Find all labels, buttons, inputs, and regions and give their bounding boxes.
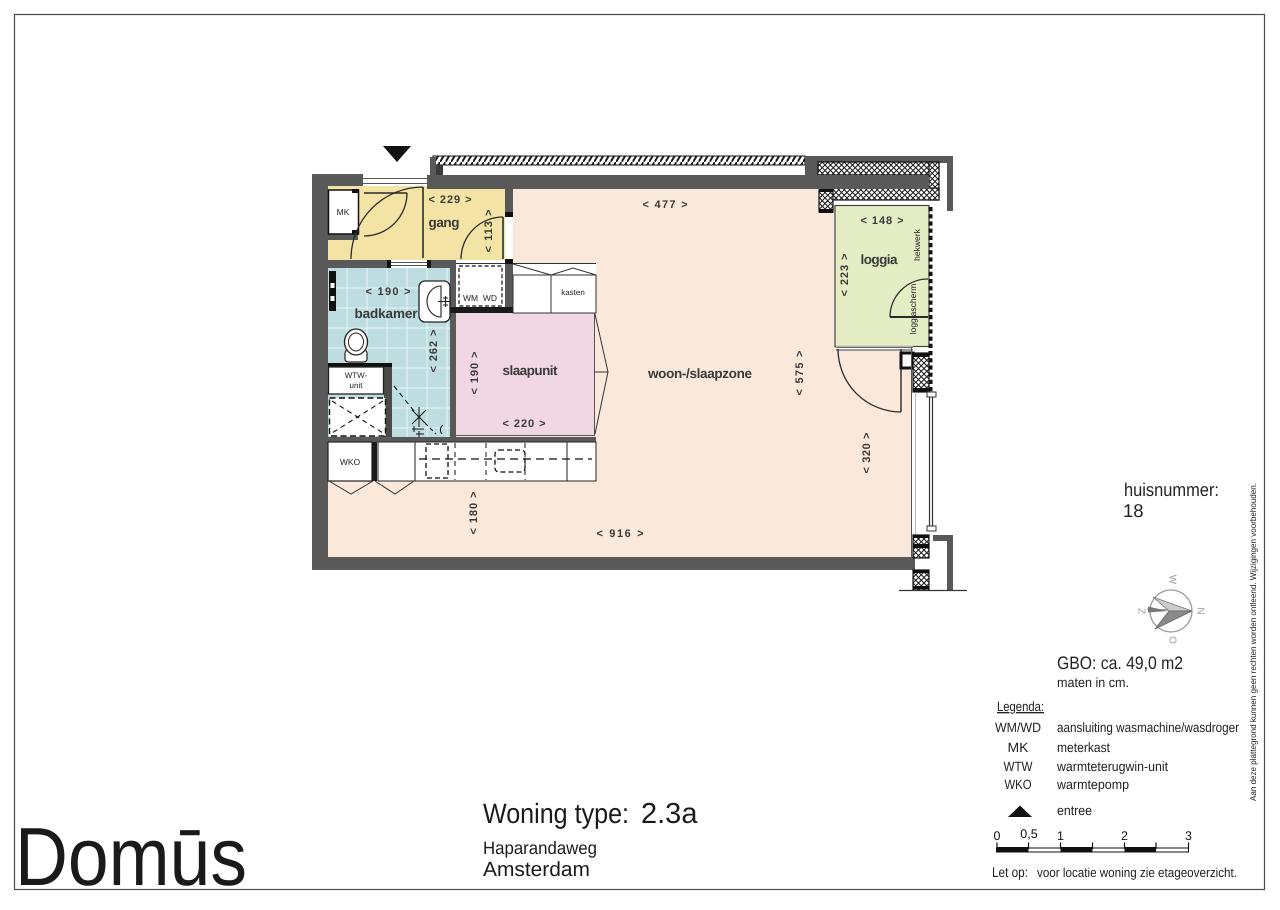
svg-text:slaapunit: slaapunit [503,363,559,378]
svg-text:W: W [1167,575,1178,585]
svg-text:voor locatie woning zie etageo: voor locatie woning zie etageoverzicht. [1037,865,1237,880]
svg-text:gang: gang [429,215,460,230]
svg-text:aansluiting wasmachine/wasdrog: aansluiting wasmachine/wasdroger [1057,720,1239,735]
svg-text:WM/WD: WM/WD [995,720,1041,735]
svg-text:kasten: kasten [561,288,585,297]
svg-text:N: N [1195,607,1206,614]
svg-text:< 180 >: < 180 > [468,492,480,535]
svg-text:loggia: loggia [861,252,898,267]
svg-text:hekwerk: hekwerk [912,228,922,260]
svg-text:Amsterdam: Amsterdam [483,858,590,881]
svg-text:0: 0 [994,829,1001,843]
svg-text:unit: unit [350,381,364,390]
svg-text:Z: Z [1136,608,1147,614]
svg-text:WKO: WKO [340,457,361,467]
svg-text:Haparandaweg: Haparandaweg [483,838,597,858]
svg-text:WTW: WTW [1004,759,1033,774]
svg-text:Legenda:: Legenda: [997,699,1044,714]
svg-text:0,5: 0,5 [1020,827,1037,841]
svg-text:MK: MK [337,207,350,217]
svg-text:O: O [1167,636,1178,644]
svg-text:entree: entree [1057,803,1092,818]
svg-text:< 262 >: < 262 > [428,330,440,373]
svg-text:maten in cm.: maten in cm. [1057,675,1129,690]
svg-text:1: 1 [1057,829,1064,843]
svg-text:2.3a: 2.3a [641,798,698,830]
svg-text:WTW-: WTW- [345,371,368,380]
svg-text:< 190 >: < 190 > [366,286,411,298]
svg-text:< 320 >: < 320 > [861,433,873,474]
svg-text:3: 3 [1185,829,1192,843]
svg-text:Aan deze plattegrond kunnen ge: Aan deze plattegrond kunnen geen rechten… [1248,483,1258,801]
svg-text:< 916 >: < 916 > [597,528,644,540]
svg-text:WKO: WKO [1005,777,1032,792]
svg-text:Woning type:: Woning type: [483,798,629,829]
svg-text:WM WD: WM WD [463,293,497,303]
svg-text:< 190 >: < 190 > [469,352,481,395]
svg-text:< 148 >: < 148 > [861,215,904,227]
svg-text:GBO: ca. 49,0 m2: GBO: ca. 49,0 m2 [1057,653,1183,673]
svg-text:badkamer: badkamer [355,306,419,321]
svg-text:MK: MK [1008,740,1029,755]
svg-text:Let op:: Let op: [992,864,1028,880]
svg-text:loggiascherm: loggiascherm [908,284,918,335]
svg-text:huisnummer:: huisnummer: [1124,479,1219,500]
svg-text:< 220 >: < 220 > [503,418,546,430]
svg-text:< 477 >: < 477 > [643,199,688,211]
svg-text:warmteterugwin-unit: warmteterugwin-unit [1056,759,1168,774]
svg-text:< 575 >: < 575 > [794,351,806,396]
svg-text:woon-/slaapzone: woon-/slaapzone [647,366,752,381]
svg-text:< 223 >: < 223 > [839,254,851,297]
svg-text:< 229 >: < 229 > [429,194,472,206]
svg-text:meterkast: meterkast [1057,740,1110,755]
svg-text:2: 2 [1121,829,1128,843]
svg-text:18: 18 [1123,500,1144,521]
svg-text:Domūs: Domūs [15,811,247,903]
svg-text:warmtepomp: warmtepomp [1056,777,1129,792]
